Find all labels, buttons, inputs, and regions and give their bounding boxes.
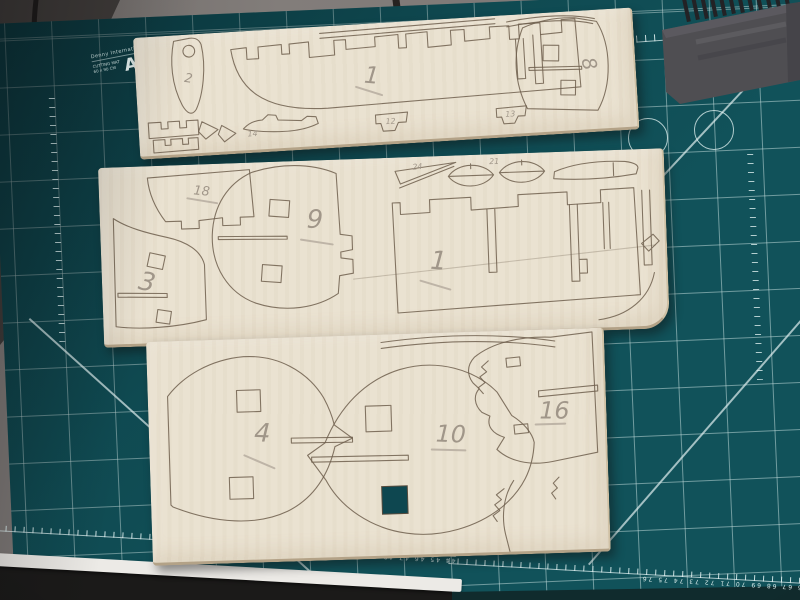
- pencil-label-keel: 1: [363, 61, 381, 90]
- pencil-label-stern: 16: [539, 396, 569, 424]
- pencil-label-strip: 14: [247, 129, 257, 139]
- scratch-mark: [353, 245, 657, 279]
- cut-hull10-slot: [312, 454, 409, 463]
- cut-hull10-hole: [365, 405, 391, 431]
- cut-bottom-scrolls: [492, 477, 561, 552]
- photo-laser-cut-plywood-scene: Denny International CUTTING MAT 60 x 90 …: [0, 0, 800, 600]
- pencil-label-bracket-b: 13: [505, 109, 515, 119]
- cut-transom-hole: [543, 45, 559, 61]
- cut-fin-piece: [553, 160, 638, 180]
- pencil-label-bow: 2: [183, 70, 193, 86]
- cut-comb-pieces: [148, 120, 199, 153]
- cut-piece-hull9: [210, 164, 355, 311]
- pencil-label-hull-center: 10: [435, 419, 466, 448]
- cut-stern16-hole: [506, 357, 521, 367]
- stand-side-face: [786, 2, 800, 82]
- mat-circle-guide: [694, 110, 734, 150]
- cut-piece-hull10: [305, 362, 537, 538]
- cut-stern16-scroll: [477, 361, 489, 394]
- plywood-sheet-middle: 18 3 9 24 21 1: [98, 148, 670, 348]
- cut-arrow-pieces: [198, 120, 236, 144]
- pencil-label-hull-left: 4: [254, 418, 271, 449]
- cut-thin-strips: [381, 333, 555, 352]
- cut-bow-hole: [183, 45, 195, 57]
- cut-hull10-hole-open: [382, 486, 409, 514]
- cut-transom-slot: [529, 64, 582, 72]
- cut-stern16-hole: [514, 424, 529, 434]
- cut-piece-keel: [230, 19, 581, 114]
- cut-piece-stern16: [467, 332, 598, 465]
- cut-side3-hole: [156, 310, 171, 325]
- cut-hull9-hole: [261, 265, 282, 283]
- cut-hull9-slot: [218, 234, 287, 241]
- plywood-sheet-bottom: 4 10 16: [146, 328, 611, 566]
- pencil-label-bracket-a: 12: [385, 117, 395, 127]
- pencil-underline: [536, 424, 566, 425]
- cut-keel-slots: [515, 35, 543, 85]
- cut-deck1-slots: [487, 202, 612, 284]
- drill-bit-stand: [636, 0, 800, 110]
- cut-triangle-pieces: [395, 162, 457, 188]
- pencil-slash: [244, 454, 274, 469]
- pencil-label-hull: 9: [306, 205, 323, 236]
- pencil-slash: [421, 280, 451, 291]
- cut-edge-strips: [640, 190, 660, 265]
- pencil-underline: [432, 448, 466, 451]
- pencil-label-leaves: 21: [489, 157, 499, 166]
- pencil-label-transom: 8: [576, 55, 601, 73]
- pencil-slash: [301, 239, 333, 246]
- sheet-bottom-cuts: 4 10 16: [146, 328, 609, 563]
- sheet-middle-cuts: 18 3 9 24 21 1: [98, 148, 668, 345]
- pencil-label-bulkhead: 18: [193, 183, 211, 200]
- cut-hull9-hole: [269, 199, 290, 217]
- pencil-label-deck: 1: [429, 246, 447, 277]
- cut-piece-side3: [112, 216, 206, 330]
- cut-hull4-hole: [236, 390, 260, 412]
- cut-stern16-slot: [538, 385, 597, 397]
- cut-hull4-hole: [229, 477, 253, 499]
- pencil-label-triangles: 24: [412, 162, 423, 172]
